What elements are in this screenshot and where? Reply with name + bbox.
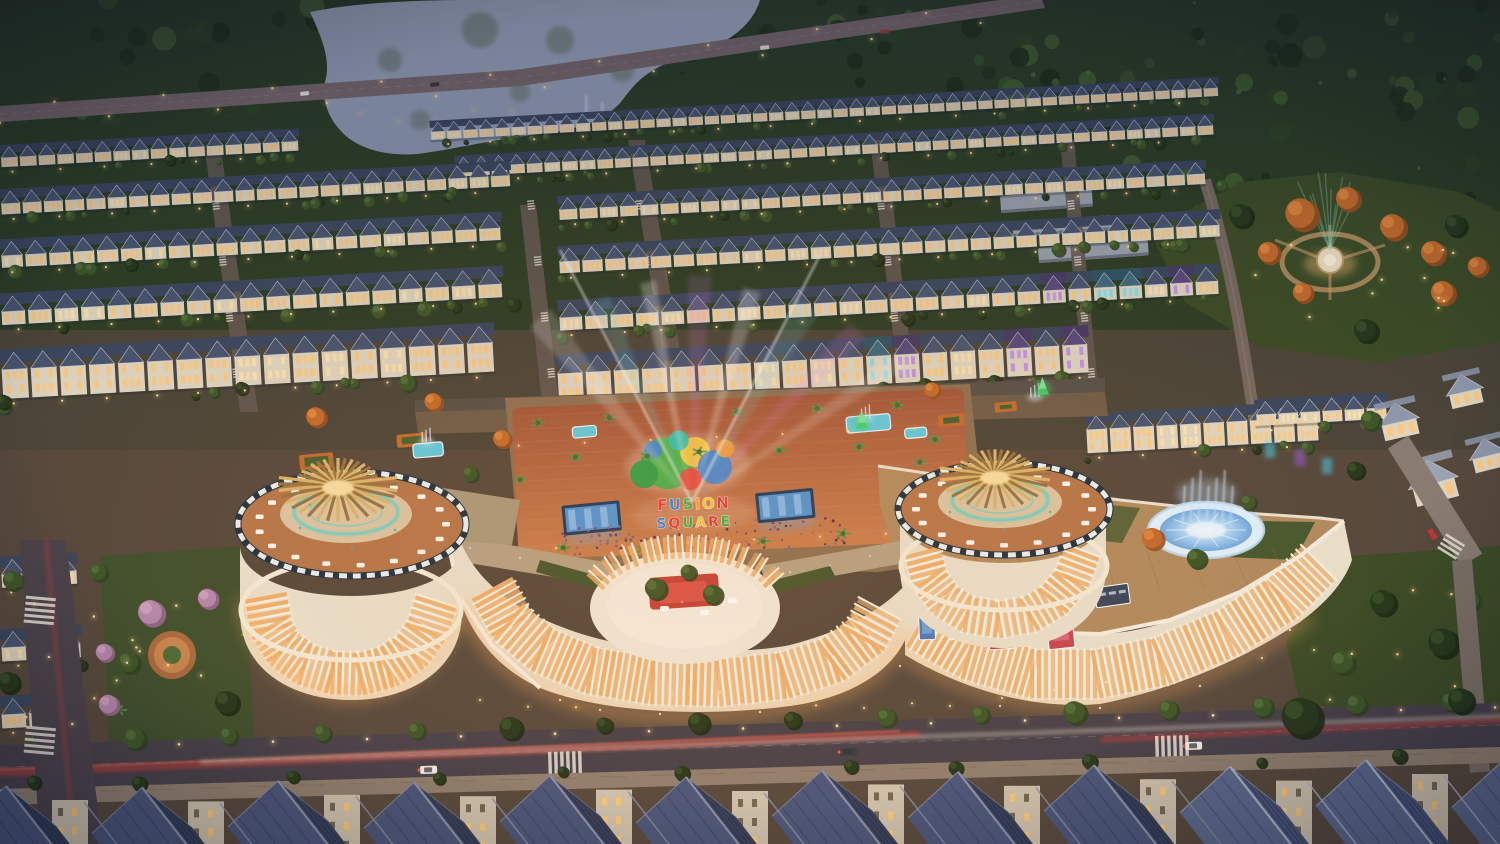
aerial-rendering-fusion-square: FUSION SQUARE: [0, 0, 1500, 844]
color-grade: [0, 0, 1500, 844]
scene-canvas: FUSION SQUARE: [0, 0, 1500, 844]
